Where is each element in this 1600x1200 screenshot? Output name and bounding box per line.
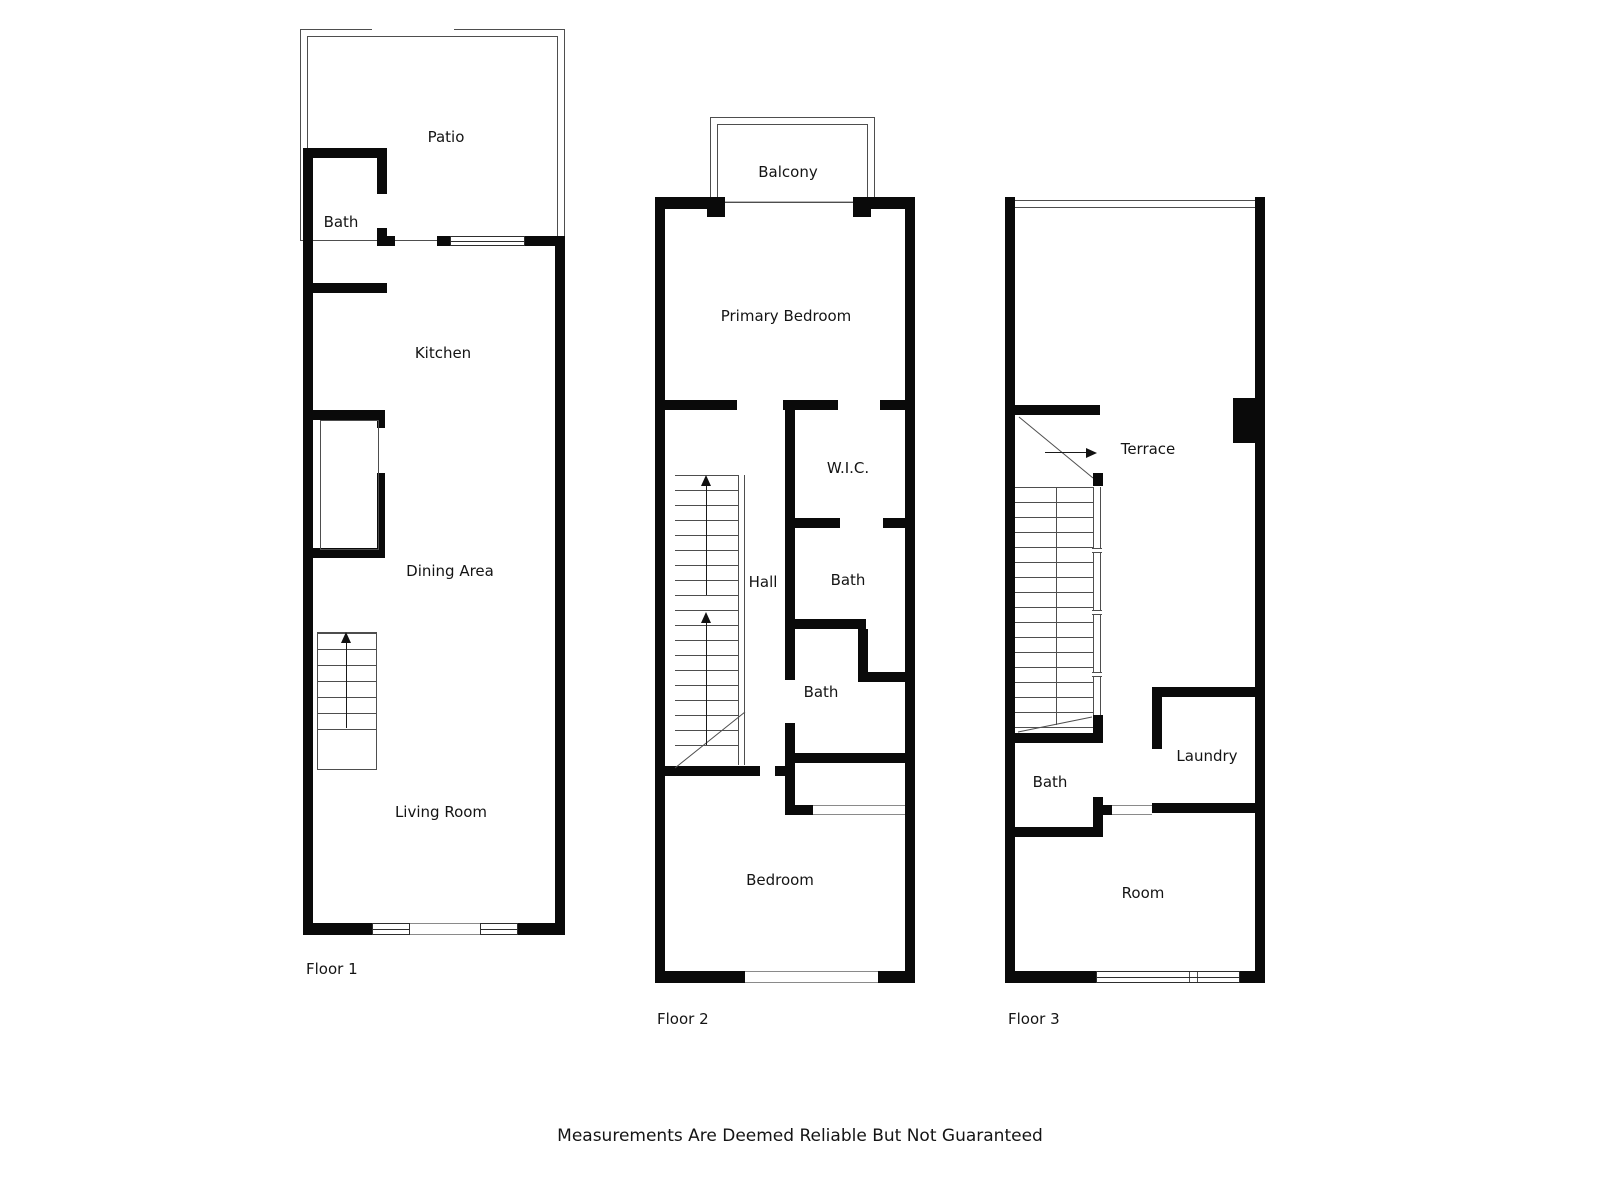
wall	[1015, 405, 1100, 415]
wall	[878, 971, 915, 983]
door-opening	[410, 923, 480, 935]
terrace-edge-line	[1010, 200, 1260, 201]
room-label-wic: W.I.C.	[827, 459, 869, 477]
stair-direction-line	[346, 642, 347, 728]
room-label-bath: Bath	[324, 213, 359, 231]
wall	[303, 148, 313, 935]
wall	[858, 672, 915, 682]
staircase-floor-1	[317, 632, 377, 770]
wall	[1093, 805, 1112, 815]
stair-direction-line	[706, 622, 707, 745]
room-label-room: Room	[1122, 884, 1165, 902]
floor-label-2: Floor 2	[657, 1010, 709, 1028]
wall	[707, 209, 725, 217]
wall	[518, 923, 565, 935]
wall	[1093, 473, 1103, 486]
staircase-floor-3	[1015, 487, 1093, 728]
wall	[795, 518, 840, 528]
wall	[555, 236, 565, 935]
wall	[1015, 827, 1103, 837]
room-label-primary-bedroom: Primary Bedroom	[721, 307, 852, 325]
window	[372, 923, 410, 935]
floor-label-3: Floor 3	[1008, 1010, 1060, 1028]
room-label-bedroom: Bedroom	[746, 871, 814, 889]
window	[450, 236, 525, 246]
stair-center-line	[1056, 487, 1057, 725]
wall	[1152, 803, 1265, 813]
closet-outline	[320, 420, 379, 550]
wall	[437, 236, 450, 246]
window	[480, 923, 518, 935]
room-label-bath-upper: Bath	[831, 571, 866, 589]
balcony-slider-line	[725, 201, 853, 202]
stair-railing-tick	[1092, 610, 1102, 615]
wall	[1015, 733, 1103, 743]
stair-direction-arrow	[1086, 448, 1097, 458]
stair-direction-arrow	[701, 475, 711, 486]
window	[1096, 971, 1240, 983]
wall	[775, 766, 785, 776]
wall	[1152, 687, 1265, 697]
room-label-living: Living Room	[395, 803, 487, 821]
wall	[790, 619, 866, 629]
stair-direction-arrow	[701, 612, 711, 623]
patio-gate-gap	[372, 27, 454, 32]
wall	[1005, 197, 1015, 983]
stair-tread-lines	[318, 633, 376, 730]
wall	[785, 723, 795, 812]
stair-winder-line	[1015, 710, 1093, 734]
room-label-balcony: Balcony	[758, 163, 817, 181]
stair-railing-tick	[1092, 672, 1102, 677]
stair-railing-tick	[1092, 548, 1102, 553]
wall	[883, 518, 915, 528]
window-opening	[745, 971, 878, 983]
wall	[303, 410, 385, 420]
stair-winder-line	[1015, 415, 1095, 480]
chimney-block	[1233, 398, 1255, 443]
wall	[1005, 971, 1096, 983]
door-opening	[813, 805, 905, 815]
floor-plan: Patio Bath Kitchen Dining Area Living Ro…	[0, 0, 1600, 1200]
room-label-bath-lower: Bath	[804, 683, 839, 701]
room-label-terrace: Terrace	[1121, 440, 1176, 458]
room-label-bath: Bath	[1033, 773, 1068, 791]
wall	[785, 400, 795, 680]
room-label-laundry: Laundry	[1176, 747, 1237, 765]
room-label-patio: Patio	[428, 128, 465, 146]
wall	[303, 283, 387, 293]
stair-direction-arrow	[341, 632, 351, 643]
wall	[655, 197, 665, 983]
room-label-dining: Dining Area	[406, 562, 494, 580]
wall	[905, 197, 915, 983]
wall	[1152, 687, 1162, 749]
wall	[785, 805, 813, 815]
floor-label-1: Floor 1	[306, 960, 358, 978]
disclaimer-text: Measurements Are Deemed Reliable But Not…	[0, 1126, 1600, 1146]
window-divider	[1197, 972, 1198, 982]
wall	[655, 400, 737, 410]
wall	[655, 197, 725, 209]
wall	[655, 971, 745, 983]
wall	[1255, 197, 1265, 983]
wall	[880, 400, 915, 410]
stair-winder-line	[675, 706, 745, 768]
stair-direction-line	[706, 485, 707, 595]
wall	[303, 148, 387, 158]
wall	[377, 158, 387, 194]
wall	[377, 236, 395, 246]
window-divider	[1189, 972, 1190, 982]
wall	[790, 753, 915, 763]
stair-direction-line	[1045, 452, 1088, 453]
room-label-hall: Hall	[749, 573, 778, 591]
wall	[303, 923, 372, 935]
wall	[853, 209, 871, 217]
room-label-kitchen: Kitchen	[415, 344, 471, 362]
wall	[1240, 971, 1265, 983]
door-opening	[1112, 805, 1152, 815]
terrace-edge-line	[1015, 207, 1255, 208]
